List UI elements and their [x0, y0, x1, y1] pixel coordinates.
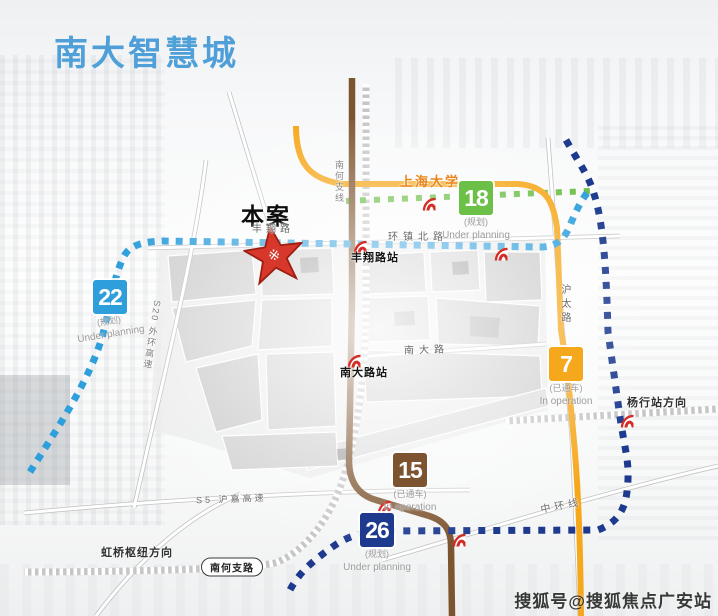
station-label-nandalu: 南大路站 [340, 364, 388, 380]
line-22-number: 22 [98, 284, 122, 311]
road-label-nanhe-branch-rail: 南何支线 [333, 160, 346, 204]
direction-label-hongqiao: 虹桥枢纽方向 [101, 544, 173, 560]
line-26-status-cn: (规划) [322, 549, 432, 561]
road-label-huanzhen-north: 环镇北路 [388, 228, 448, 243]
line-7-status-en: In operation [511, 395, 621, 408]
svg-text:※: ※ [267, 247, 281, 265]
line-26-status: (规划) Under planning [322, 549, 432, 574]
road-label-nanda: 南大路 [404, 340, 449, 357]
map-page: 22 (规划) Under planning 18 (规划) Under pla… [0, 0, 718, 616]
line-18-badge: 18 (规划) Under planning [459, 181, 493, 215]
line-15-status: (已通车) In operation [355, 489, 465, 514]
line-18-number: 18 [464, 185, 488, 212]
line-18-status-cn: (规划) [421, 217, 531, 229]
line-7-badge: 7 (已通车) In operation [549, 347, 583, 381]
line-15-status-cn: (已通车) [355, 489, 465, 501]
line-26-status-en: Under planning [322, 561, 432, 574]
line-7-number: 7 [560, 351, 572, 378]
watermark-text: 搜狐号@搜狐焦点广安站 [514, 587, 712, 612]
line-26-number: 26 [365, 517, 389, 544]
line-15-number: 15 [398, 457, 422, 484]
line-7-status-cn: (已通车) [511, 383, 621, 395]
line-15-badge: 15 (已通车) In operation [393, 453, 427, 487]
station-label-fengxianglu: 丰翔路站 [351, 249, 399, 265]
line-7-status: (已通车) In operation [511, 383, 621, 408]
road-label-hutai: 沪太路 [557, 284, 572, 326]
line-26-badge: 26 (规划) Under planning [360, 513, 394, 547]
page-title: 南大智慧城 [54, 26, 239, 75]
road-label-nanhe-zhilu: 南何支路 [201, 558, 263, 577]
direction-label-yanghang: 杨行站方向 [627, 394, 687, 410]
road-label-s5: S5 沪嘉高速 [196, 491, 267, 506]
line-22-badge: 22 (规划) Under planning [93, 280, 127, 314]
line-15-status-en: In operation [355, 501, 465, 514]
road-label-fengxiang: 丰翔路 [252, 220, 294, 235]
metro-logo-line26-icon [439, 520, 466, 547]
station-label-shanghai-univ: 上海大学 [400, 171, 460, 190]
